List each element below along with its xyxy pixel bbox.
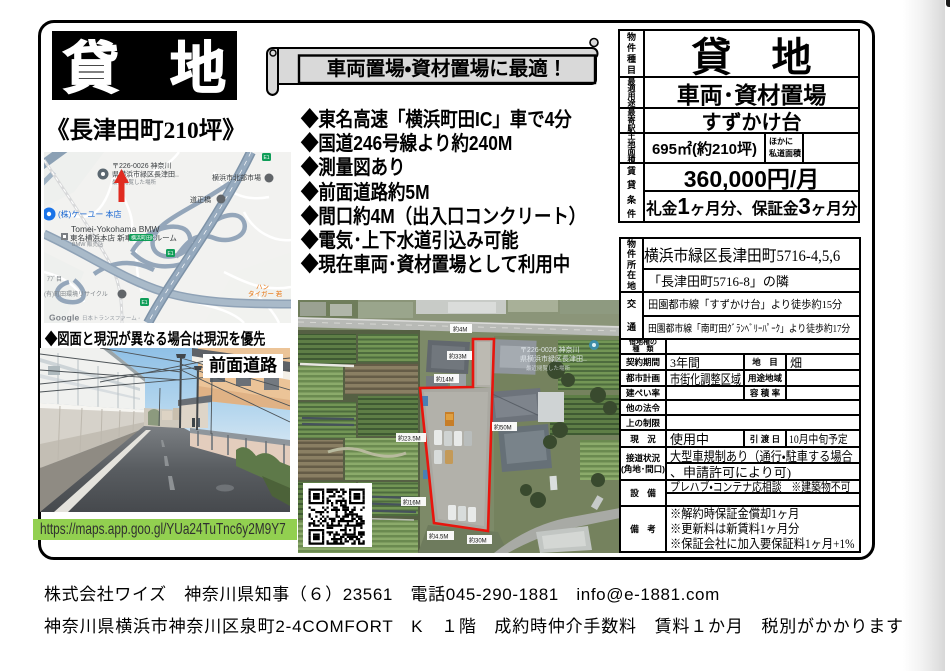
svg-text:(株)ケーユー 本店: (株)ケーユー 本店 <box>58 209 122 219</box>
svg-text:横浜町田IC: 横浜町田IC <box>131 235 156 242</box>
svg-text:(有)町田環境リサイクル: (有)町田環境リサイクル <box>44 290 108 298</box>
svg-text:約50M: 約50M <box>494 424 512 432</box>
svg-text:約23.5M: 約23.5M <box>398 435 421 443</box>
svg-text:ｱﾌﾞ目: ｱﾌﾞ目 <box>47 276 62 283</box>
svg-text:日本トランスファーム ◦: 日本トランスファーム ◦ <box>82 314 140 322</box>
svg-text:東名横浜本店 新車ショールーム: 東名横浜本店 新車ショールーム <box>70 233 177 243</box>
svg-text:Tomei-Yokohama BMW: Tomei-Yokohama BMW <box>71 224 160 234</box>
svg-text:E1: E1 <box>263 155 269 161</box>
svg-text:横浜市北部市場: 横浜市北部市場 <box>212 173 261 182</box>
svg-text:タイガー 若: タイガー 若 <box>248 289 283 298</box>
svg-text:県横浜市緑区長津田..: 県横浜市緑区長津田.. <box>520 354 587 363</box>
svg-text:〒226-0026 神奈川: 〒226-0026 神奈川 <box>112 161 172 170</box>
svg-text:道正橋: 道正橋 <box>190 195 211 204</box>
svg-text:E1: E1 <box>141 300 147 306</box>
svg-text:Google: Google <box>49 313 80 323</box>
svg-text:〒226-0026 神奈川: 〒226-0026 神奈川 <box>520 345 580 354</box>
svg-text:約16M: 約16M <box>403 499 421 507</box>
svg-text:約30M: 約30M <box>469 537 487 545</box>
svg-text:最近閲覧した場所: 最近閲覧した場所 <box>526 364 571 372</box>
svg-text:約4.5M: 約4.5M <box>429 533 448 541</box>
svg-text:BMW 販売店: BMW 販売店 <box>72 240 104 248</box>
svg-text:E1: E1 <box>167 251 173 257</box>
svg-text:約33M: 約33M <box>449 353 467 361</box>
svg-text:約4M: 約4M <box>453 326 467 334</box>
svg-text:ハン: ハン <box>256 284 269 291</box>
svg-text:約14M: 約14M <box>436 376 454 384</box>
